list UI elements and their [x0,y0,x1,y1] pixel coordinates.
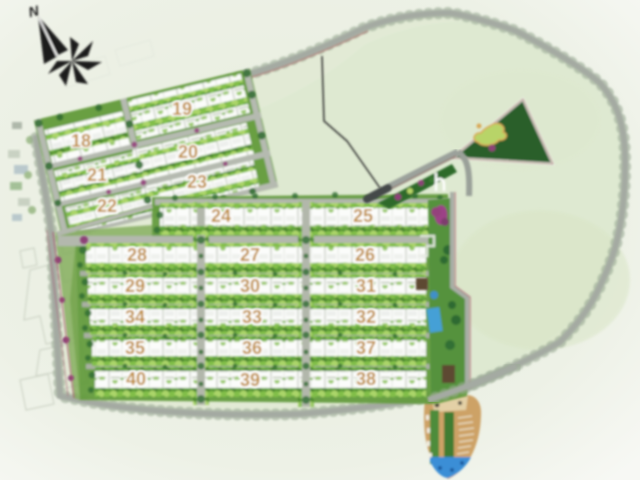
svg-text:27: 27 [240,245,260,265]
svg-text:28: 28 [127,245,147,265]
svg-text:33: 33 [242,307,262,327]
svg-text:32: 32 [356,307,376,327]
svg-text:23: 23 [187,172,207,192]
svg-text:40: 40 [126,369,146,389]
svg-text:26: 26 [355,245,375,265]
svg-text:20: 20 [178,142,198,162]
svg-text:36: 36 [242,338,262,358]
svg-text:39: 39 [240,370,260,390]
svg-text:22: 22 [97,196,117,216]
svg-text:37: 37 [356,338,376,358]
svg-text:34: 34 [125,307,145,327]
svg-text:24: 24 [211,206,231,226]
svg-text:21: 21 [87,165,107,185]
svg-text:35: 35 [125,338,145,358]
svg-text:38: 38 [356,369,376,389]
svg-text:18: 18 [71,131,91,151]
svg-text:25: 25 [353,206,373,226]
svg-text:29: 29 [125,276,145,296]
svg-text:19: 19 [172,99,192,119]
svg-text:31: 31 [356,276,376,296]
svg-text:30: 30 [240,276,260,296]
